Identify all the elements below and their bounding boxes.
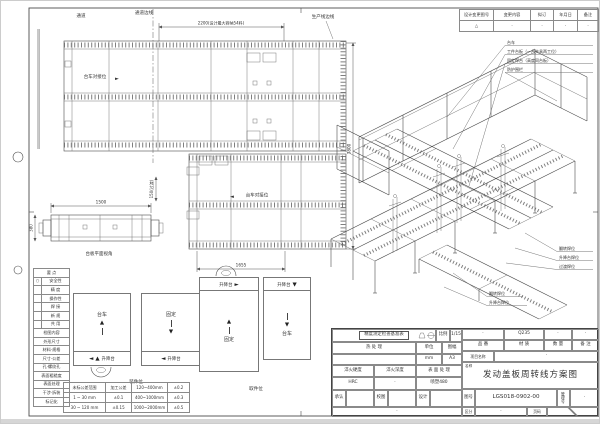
tolerance-cell: 未标公差范围 <box>64 383 106 393</box>
revision-header: 设计变更图号 <box>460 10 494 21</box>
dim-1500: 1500 <box>96 200 107 205</box>
tolerance-table: 未标公差范围 加工公差 120~400mm ±0.2 1 ~ 30 mm ±0.… <box>63 382 190 413</box>
lift-label: 升降台 <box>277 282 290 288</box>
checklist-item: 外形尺寸 <box>34 337 70 346</box>
lift-label: 升降台 <box>168 356 181 362</box>
aisle-label: 通道 <box>77 12 86 19</box>
arrow-stem <box>171 320 172 327</box>
tolerance-cell: 120~400mm <box>132 383 168 393</box>
pick-fixed-box: ▲ 固定 <box>199 290 259 372</box>
checklist-item: 表面粗糙度 <box>34 372 70 381</box>
scale-label: 比例 <box>436 329 450 342</box>
revision-header: 拟订 <box>531 10 554 21</box>
projection-symbol-icon <box>418 331 436 340</box>
drawing-name-label: 名称 <box>465 365 472 369</box>
dock-label-top: 台车对接位 <box>84 73 107 80</box>
callout-tilt-station-2: 翻转焊位 <box>489 290 505 296</box>
unit-label: 单位 <box>416 342 442 354</box>
checklist-item: 孔·螺纹孔 <box>34 363 70 372</box>
management-no-value: · <box>570 389 599 407</box>
dim-380: 380 <box>29 224 34 232</box>
callout-fixed-table: 固定焊台（高度同台板） <box>507 57 551 63</box>
title-block: 精度测定检查基准表 比例 1/15 热 处 理 单位 图幅 mm A3 淬火硬度… <box>331 328 598 416</box>
revision-header: 变更内容 <box>494 10 531 21</box>
tolerance-cell: ±0.2 <box>168 383 190 393</box>
part-no-label: 品 番 <box>462 340 504 351</box>
revision-table: 设计变更图号 变更内容 拟订 年月日 备注 △ · · · · <box>459 9 599 32</box>
lift-label: 升降台 <box>219 282 232 288</box>
revision-cell: · <box>554 21 578 32</box>
class-value: · <box>475 407 527 417</box>
check-signature-box <box>388 390 416 407</box>
revision-cell: · <box>531 21 554 32</box>
down-arrow-icon: ▼ <box>169 329 173 335</box>
callout-lift-station-2: 升降台焊位 <box>489 299 509 305</box>
sheet-size-value: A3 <box>442 354 462 365</box>
quantity-value: · <box>544 329 572 340</box>
right-arrow-icon: ► <box>234 282 238 288</box>
up-arrow-icon: ▲ <box>100 320 104 326</box>
load-lift-strip-1: ◄ ▲ 升降台 <box>73 351 131 366</box>
heat-treatment-value <box>332 354 416 365</box>
dock-arrow-left-icon: ◄ <box>230 194 234 200</box>
revision-mark-icon: △ <box>460 21 494 32</box>
design-signature-box <box>430 390 462 407</box>
up-arrow-icon: ▲ <box>227 319 231 325</box>
up-arrow-icon: ▲ <box>95 356 99 362</box>
arrow-stem <box>287 313 288 320</box>
line-edge-label: 生产线边线 <box>312 13 335 20</box>
left-arrow-icon: ◄ <box>89 356 93 362</box>
down-arrow-icon: ▼ <box>285 322 289 328</box>
checklist-item: 操作性 <box>42 294 70 303</box>
footer-cell: · <box>332 407 462 417</box>
isometric-view: 台车 工件台板（一台夹具两工位） 固定焊台（高度同台板） 防护围栏 翻转焊位 升… <box>331 39 593 319</box>
tolerance-cell: ±0.3 <box>168 393 190 403</box>
load-trolley-label: 台车 <box>97 311 107 318</box>
drawing-no-value: LGS018-0902-00 <box>475 389 557 407</box>
check-label: 校图 <box>374 390 388 407</box>
arrow-stem <box>102 328 103 335</box>
tolerance-cell: ±0.5 <box>168 403 190 413</box>
drawing-name-cell: 名称 发动盖板周转线方案图 <box>462 362 599 389</box>
part-no-value: · <box>462 329 504 340</box>
inspection-header: 精度测定检查基准表 <box>359 331 409 339</box>
revision-row: △ · · · · <box>460 21 599 32</box>
tolerance-cell: ±0.15 <box>106 403 132 413</box>
plan-view-mid: ◄ 台车对接位 1655 150(过渡) <box>148 154 346 272</box>
revision-header-row: 设计变更图号 变更内容 拟订 年月日 备注 <box>460 10 599 21</box>
page-number-cell <box>547 407 599 417</box>
tolerance-cell: 30 ~ 120 mm <box>64 403 106 413</box>
pick-station-caption: 取件位 <box>216 386 296 392</box>
checklist-item: 安全性 <box>42 277 70 286</box>
project-name-label: 项目名称 <box>462 351 494 362</box>
approve-label: 承认 <box>332 390 346 407</box>
arrow-stem <box>229 327 230 334</box>
drawing-sheet: 通道 通道边线 生产线边线 台车对接位 ► 2200(设计最大容纳54料) 38… <box>0 0 600 424</box>
unit-value: mm <box>416 354 442 365</box>
elevation-view: 1500 380 台板平面视角 <box>29 200 164 258</box>
callout-lift-station: 升降台焊位 <box>559 254 579 260</box>
load-trolley-box: 台车 ▲ <box>73 293 131 353</box>
lift-label: 升降台 <box>102 356 115 362</box>
drawing-no-label: 图号 <box>462 389 475 407</box>
material-value: Q235 <box>504 329 544 340</box>
project-name-value: · <box>494 351 599 362</box>
down-arrow-icon: ▼ <box>292 282 296 288</box>
material-label: 材 质 <box>504 340 544 351</box>
checklist-item: 尺寸·公差 <box>34 354 70 363</box>
drawing-title: 发动盖板周转线方案图 <box>483 371 578 380</box>
management-no-label: 管理号 <box>557 389 570 407</box>
remarks-value: · <box>572 329 599 340</box>
operator-symbol <box>214 263 238 277</box>
iso-callouts-upper: 台车 工件台板（一台夹具两工位） 固定焊台（高度同台板） 防护围栏 <box>447 39 593 186</box>
dim-2200: 2200(设计最大容纳54料) <box>198 20 245 26</box>
heat-treatment-label: 热 处 理 <box>332 342 416 354</box>
revision-cell: · <box>578 21 599 32</box>
surface-treatment-value: 喷塑480 <box>416 377 462 390</box>
design-label: 设计 <box>416 390 430 407</box>
revision-header: 备注 <box>578 10 599 21</box>
dock-arrow-right-icon: ► <box>115 76 119 82</box>
pick-trolley-label: 台车 <box>282 330 292 337</box>
dim-150: 150(过渡) <box>148 179 154 198</box>
pick-fixed-label: 固定 <box>224 336 234 343</box>
checklist-item: 材料·规格 <box>34 346 70 355</box>
dock-label-mid: 台车对接位 <box>246 192 269 199</box>
page-label: 页码 <box>527 407 547 417</box>
operator-symbol <box>89 365 113 380</box>
aisle-edge-label: 通道边线 <box>135 9 153 16</box>
quench-hardness-label: 淬火硬度 <box>332 365 374 377</box>
scale-value: 1/15 <box>450 329 462 342</box>
paper-edge-shadow <box>1 419 600 424</box>
revision-cell: · <box>494 21 531 32</box>
sheet-size-label: 图幅 <box>442 342 462 354</box>
callout-fence: 防护围栏 <box>507 66 523 72</box>
quantity-label: 数 量 <box>544 340 572 351</box>
surface-treatment-label: 表 面 处 理 <box>416 365 462 377</box>
remarks-label: 备 注 <box>572 340 599 351</box>
checklist-item: 新 规 <box>42 311 70 320</box>
load-fixed-box: 固定 ▼ <box>141 293 201 353</box>
quench-hardness-value: HRC <box>332 377 374 390</box>
tolerance-cell: 加工公差 <box>106 383 132 393</box>
callout-tilt-station: 翻转焊位 <box>559 245 575 251</box>
quench-depth-label: 淬火深度 <box>374 365 416 377</box>
checklist-item: 共 用 <box>42 320 70 329</box>
quench-depth-value: · <box>374 377 416 390</box>
tolerance-cell: 1 ~ 30 mm <box>64 393 106 403</box>
dim-3800: 3800 <box>347 143 352 154</box>
left-arrow-icon: ◄ <box>161 356 165 362</box>
revision-header: 年月日 <box>554 10 578 21</box>
approve-signature-box <box>346 390 374 407</box>
tolerance-cell: ±0.1 <box>106 393 132 403</box>
checklist-item: 精 度 <box>42 286 70 295</box>
tolerance-cell: 1000~2000mm <box>132 403 168 413</box>
callout-trolley: 台车 <box>507 39 515 45</box>
load-fixed-label: 固定 <box>166 311 176 318</box>
callout-pallet: 工件台板（一台夹具两工位） <box>507 48 559 54</box>
callout-transition-station: 过渡焊位 <box>559 263 575 269</box>
tolerance-cell: 400~1000mm <box>132 393 168 403</box>
class-label: 区分 <box>462 407 475 417</box>
checklist-item: 焊 接 <box>42 303 70 312</box>
checklist-title-2: 检图内容 <box>34 329 70 338</box>
pick-trolley-box: ▼ 台车 <box>263 290 311 360</box>
load-lift-strip-2: ◄ 升降台 <box>141 351 201 366</box>
elevation-caption: 台板平面视角 <box>86 250 113 257</box>
iso-callouts-lower: 翻转焊位 升降台焊位 过渡焊位 翻转焊位 升降台焊位 <box>444 233 593 306</box>
checklist-mark: ○ <box>34 277 42 286</box>
checklist-title-1: 要 点 <box>34 269 70 278</box>
